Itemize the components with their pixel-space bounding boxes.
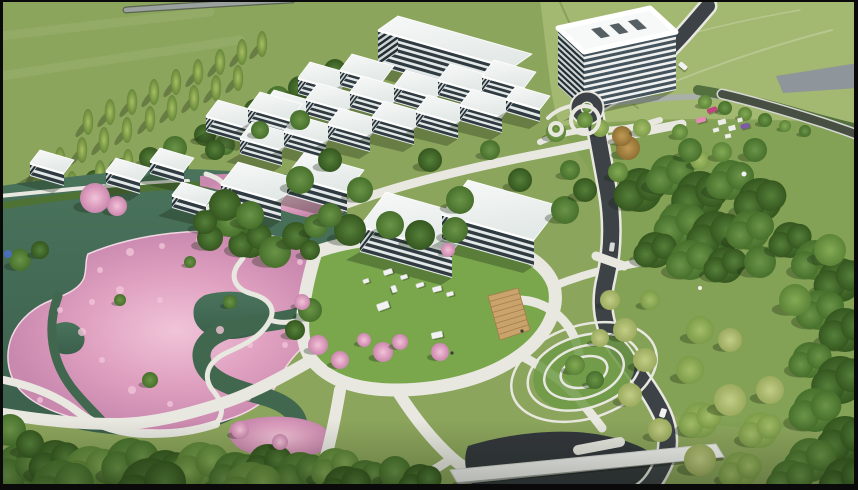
- aerial-render-viewport: [0, 0, 858, 490]
- blossom-speckle: [167, 401, 173, 407]
- small-object: [4, 250, 12, 258]
- tree: [405, 220, 435, 250]
- tree: [814, 234, 846, 266]
- blossom-speckle: [97, 267, 103, 273]
- tree: [300, 240, 320, 260]
- tree: [698, 95, 712, 109]
- cypress-tree: [193, 59, 203, 85]
- frame-left: [0, 0, 3, 490]
- blossom-speckle: [78, 328, 86, 336]
- tree: [184, 256, 196, 268]
- tree: [285, 320, 305, 340]
- tree: [480, 140, 500, 160]
- cypress-tree: [189, 85, 199, 111]
- blossom-speckle: [282, 342, 288, 348]
- tree: [31, 241, 49, 259]
- tree: [686, 316, 714, 344]
- tree: [560, 160, 580, 180]
- tree: [678, 138, 702, 162]
- tree: [251, 121, 269, 139]
- blossom-tree: [331, 351, 349, 369]
- blossom-speckle: [216, 326, 224, 334]
- blossom-speckle: [37, 397, 43, 403]
- tree: [565, 355, 585, 375]
- cypress-tree: [99, 127, 109, 153]
- small-object: [698, 286, 702, 290]
- tree: [508, 168, 532, 192]
- tree: [193, 210, 217, 234]
- small-object: [520, 329, 523, 332]
- tree: [9, 249, 31, 271]
- blossom-tree: [107, 196, 127, 216]
- tree: [746, 212, 774, 240]
- blossom-tree: [294, 294, 310, 310]
- tree: [756, 180, 787, 211]
- cypress-tree: [215, 49, 225, 75]
- tree: [223, 295, 237, 309]
- tree: [613, 318, 637, 342]
- tree: [142, 372, 158, 388]
- blossom-tree: [441, 243, 455, 257]
- blossom-speckle: [126, 248, 134, 256]
- tree: [640, 290, 660, 310]
- tree: [779, 120, 791, 132]
- tree: [591, 329, 609, 347]
- tree: [446, 186, 474, 214]
- cypress-tree: [237, 39, 247, 65]
- tree: [290, 110, 310, 130]
- tree: [743, 138, 767, 162]
- tree: [758, 113, 772, 127]
- cypress-tree: [105, 99, 115, 125]
- cypress-tree: [145, 106, 155, 132]
- cypress-tree: [211, 75, 221, 101]
- tree: [347, 177, 373, 203]
- small-object: [450, 351, 453, 354]
- tree: [600, 290, 620, 310]
- tree: [779, 284, 811, 316]
- cypress-tree: [233, 65, 243, 91]
- tree: [714, 384, 746, 416]
- cypress-tree: [171, 69, 181, 95]
- blossom-speckle: [128, 386, 136, 394]
- cypress-tree: [127, 89, 137, 115]
- cypress-tree: [167, 95, 177, 121]
- tree: [672, 124, 688, 140]
- cypress-tree: [83, 109, 93, 135]
- blossom-tree: [308, 335, 328, 355]
- tree: [799, 125, 811, 137]
- tree: [205, 140, 225, 160]
- cypress-tree: [122, 117, 132, 143]
- blossom-speckle: [99, 357, 105, 363]
- blossom-speckle: [297, 259, 303, 265]
- blossom-tree: [392, 334, 408, 350]
- blossom-speckle: [157, 297, 163, 303]
- tree: [718, 328, 742, 352]
- tree: [676, 356, 704, 384]
- frame-right: [854, 0, 858, 490]
- blossom-tree: [357, 333, 371, 347]
- tree: [418, 148, 442, 172]
- tree: [318, 148, 342, 172]
- cypress-tree: [77, 137, 87, 163]
- cypress-tree: [149, 79, 159, 105]
- tree: [712, 142, 732, 162]
- blossom-speckle: [116, 286, 124, 294]
- blossom-tree: [431, 343, 449, 361]
- tree: [114, 294, 126, 306]
- bottom-vignette: [0, 420, 858, 490]
- blossom-tree: [80, 183, 110, 213]
- tree: [286, 166, 314, 194]
- tree: [573, 178, 597, 202]
- tree: [633, 119, 651, 137]
- plaza-planter-green: [577, 112, 593, 128]
- blossom-speckle: [57, 307, 63, 313]
- plaza-planter-green: [553, 126, 559, 132]
- frame-top: [0, 0, 858, 2]
- cypress-tree: [257, 31, 267, 57]
- small-object: [742, 172, 747, 177]
- tree: [811, 390, 842, 421]
- tree: [586, 371, 604, 389]
- tree: [236, 201, 264, 229]
- campus-aerial-render: [0, 0, 858, 490]
- tree: [608, 162, 628, 182]
- tree: [633, 348, 657, 372]
- tree: [618, 383, 642, 407]
- blossom-speckle: [89, 299, 95, 305]
- tree: [376, 211, 404, 239]
- tree: [756, 376, 784, 404]
- tree: [318, 203, 342, 227]
- blossom-speckle: [159, 243, 165, 249]
- tree: [718, 101, 732, 115]
- tree: [612, 126, 632, 146]
- tree: [442, 217, 468, 243]
- frame-bottom: [0, 484, 858, 490]
